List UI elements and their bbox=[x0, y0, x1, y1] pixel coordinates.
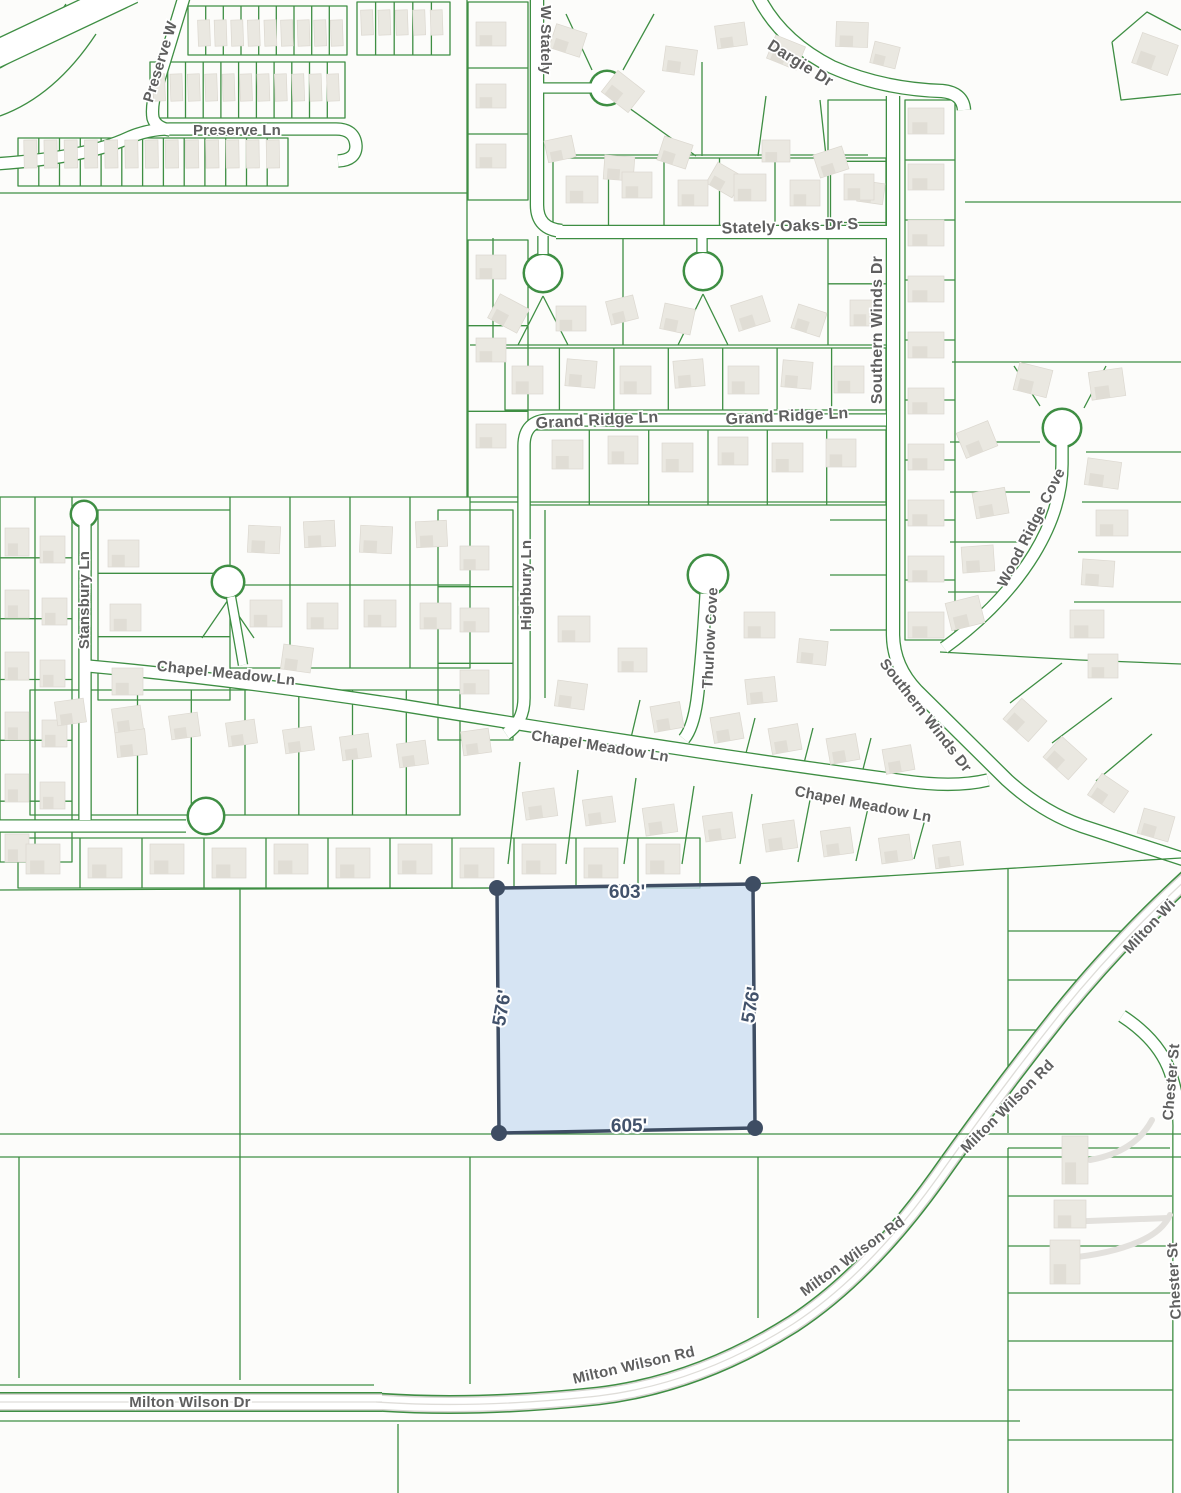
building bbox=[40, 782, 65, 809]
building bbox=[745, 677, 777, 705]
building bbox=[168, 712, 200, 740]
building bbox=[5, 774, 29, 802]
street-label-southern-winds-dr-1: Southern Winds Dr bbox=[869, 256, 886, 404]
street-label-highbury-ln: Highbury Ln bbox=[518, 540, 535, 631]
building bbox=[608, 436, 638, 464]
building bbox=[214, 20, 227, 46]
building bbox=[396, 740, 428, 768]
building bbox=[1084, 458, 1121, 489]
building bbox=[908, 500, 944, 526]
building bbox=[247, 525, 280, 554]
building bbox=[582, 796, 615, 826]
building bbox=[125, 140, 138, 168]
building bbox=[476, 144, 506, 168]
building bbox=[84, 140, 97, 168]
street-label-preserve-ln: Preserve Ln bbox=[193, 122, 281, 139]
building bbox=[566, 176, 598, 203]
building bbox=[266, 140, 279, 168]
building bbox=[870, 41, 901, 69]
building bbox=[660, 303, 696, 335]
building bbox=[1043, 736, 1087, 780]
building bbox=[826, 734, 860, 765]
building bbox=[813, 146, 849, 178]
building bbox=[565, 359, 597, 389]
building bbox=[961, 545, 995, 573]
building bbox=[488, 294, 530, 333]
building bbox=[522, 788, 558, 820]
building bbox=[206, 140, 219, 168]
building bbox=[5, 528, 29, 556]
building bbox=[42, 598, 67, 625]
building bbox=[314, 20, 327, 46]
building bbox=[231, 20, 244, 46]
building bbox=[40, 660, 65, 687]
building bbox=[361, 10, 374, 35]
building bbox=[1096, 510, 1128, 536]
building bbox=[112, 668, 143, 695]
building bbox=[430, 10, 443, 35]
building bbox=[415, 520, 447, 548]
building bbox=[554, 680, 587, 710]
building bbox=[1088, 654, 1118, 678]
map-canvas[interactable]: Preserve WPreserve LnW StatelyDargie DrS… bbox=[0, 0, 1181, 1493]
building bbox=[702, 812, 735, 842]
building bbox=[364, 600, 396, 627]
building bbox=[836, 21, 869, 47]
building bbox=[797, 639, 828, 666]
building bbox=[395, 10, 408, 35]
building bbox=[110, 604, 141, 631]
building bbox=[187, 74, 200, 101]
building bbox=[282, 726, 314, 754]
building bbox=[556, 306, 586, 331]
street-label-wood-ridge-cove: Wood Ridge Cove bbox=[994, 466, 1069, 590]
building bbox=[710, 713, 744, 744]
building bbox=[908, 164, 944, 190]
building bbox=[460, 848, 494, 878]
building bbox=[744, 612, 775, 638]
building bbox=[715, 22, 748, 49]
building bbox=[64, 140, 77, 168]
street-label-w-stately: W Stately bbox=[537, 5, 554, 75]
building bbox=[40, 536, 65, 563]
street-label-stansbury-ln: Stansbury Ln bbox=[76, 551, 93, 649]
building bbox=[460, 546, 489, 570]
building bbox=[620, 366, 651, 394]
building bbox=[476, 338, 506, 362]
building bbox=[44, 140, 57, 168]
building bbox=[222, 74, 235, 101]
building bbox=[1132, 32, 1179, 75]
building bbox=[292, 74, 305, 101]
building bbox=[762, 820, 798, 852]
building bbox=[731, 296, 771, 332]
building bbox=[5, 712, 29, 740]
building bbox=[5, 590, 29, 618]
building bbox=[105, 140, 118, 168]
building bbox=[1070, 610, 1104, 638]
building bbox=[205, 74, 218, 101]
building bbox=[413, 10, 426, 35]
building bbox=[150, 844, 184, 874]
selected-parcel[interactable] bbox=[497, 884, 755, 1133]
building bbox=[460, 608, 489, 632]
building bbox=[247, 20, 260, 46]
parcel-dimension-top: 603' bbox=[609, 882, 645, 903]
building bbox=[460, 670, 489, 694]
building bbox=[108, 540, 139, 567]
building bbox=[460, 728, 491, 756]
building bbox=[662, 443, 693, 472]
building bbox=[5, 652, 29, 680]
building bbox=[274, 844, 308, 874]
building bbox=[170, 74, 183, 101]
building bbox=[88, 848, 122, 878]
building bbox=[1003, 698, 1047, 742]
building bbox=[844, 174, 874, 200]
building bbox=[165, 140, 178, 168]
building bbox=[1054, 1200, 1086, 1228]
building bbox=[1088, 368, 1126, 400]
building bbox=[1087, 773, 1128, 812]
building bbox=[642, 804, 678, 836]
building bbox=[339, 733, 371, 761]
building bbox=[622, 172, 652, 198]
building bbox=[606, 295, 639, 325]
building bbox=[790, 180, 820, 206]
parcel-vertex[interactable] bbox=[745, 876, 761, 892]
building bbox=[240, 74, 253, 101]
building bbox=[359, 525, 392, 554]
parcel-vertex[interactable] bbox=[489, 880, 505, 896]
building bbox=[303, 520, 335, 548]
building bbox=[336, 848, 370, 878]
building bbox=[908, 444, 944, 470]
building bbox=[264, 20, 277, 46]
building bbox=[820, 827, 853, 857]
building bbox=[768, 724, 802, 755]
building bbox=[512, 366, 543, 394]
building bbox=[834, 366, 864, 393]
street-label-chester-st-2: Chester St bbox=[1164, 1242, 1181, 1320]
building bbox=[908, 612, 944, 638]
building bbox=[54, 698, 86, 726]
building bbox=[657, 136, 693, 169]
building bbox=[330, 20, 343, 46]
building bbox=[718, 437, 748, 465]
building bbox=[274, 74, 287, 101]
building bbox=[972, 487, 1009, 518]
building bbox=[111, 705, 143, 733]
parcel-dimension-bottom: 605' bbox=[611, 1116, 647, 1137]
building bbox=[5, 834, 29, 862]
building bbox=[650, 702, 684, 733]
building bbox=[246, 140, 259, 168]
building bbox=[932, 841, 963, 869]
building bbox=[678, 180, 708, 206]
building bbox=[378, 10, 391, 35]
building bbox=[225, 719, 257, 747]
building bbox=[309, 74, 322, 101]
building bbox=[226, 140, 239, 168]
building bbox=[908, 556, 944, 582]
building bbox=[618, 648, 647, 672]
building bbox=[297, 20, 310, 46]
building bbox=[772, 443, 803, 472]
building bbox=[878, 834, 912, 864]
building bbox=[1081, 559, 1115, 587]
building bbox=[1050, 1240, 1080, 1284]
building bbox=[281, 20, 294, 46]
building bbox=[762, 140, 790, 162]
building bbox=[24, 140, 37, 168]
building bbox=[476, 255, 506, 279]
building bbox=[476, 84, 506, 108]
street-label-chapel-meadow-ln-3: Chapel Meadow Ln bbox=[793, 783, 933, 826]
building bbox=[476, 424, 506, 448]
parcel-vertex[interactable] bbox=[491, 1125, 507, 1141]
building bbox=[420, 603, 451, 629]
building bbox=[826, 439, 856, 467]
building bbox=[280, 644, 313, 673]
building bbox=[956, 421, 998, 459]
building bbox=[398, 844, 432, 874]
building bbox=[250, 600, 282, 627]
building bbox=[646, 844, 680, 874]
building bbox=[1137, 808, 1175, 842]
building bbox=[307, 603, 338, 629]
building bbox=[908, 276, 944, 302]
building bbox=[558, 616, 590, 642]
building bbox=[522, 844, 556, 874]
street-label-milton-wilson-dr: Milton Wilson Dr bbox=[129, 1394, 250, 1411]
building bbox=[212, 848, 246, 878]
selected-parcel-layer: 603' 605' 576' 576' bbox=[489, 876, 765, 1141]
building bbox=[882, 745, 915, 775]
building bbox=[728, 366, 759, 394]
building bbox=[908, 332, 944, 358]
building bbox=[145, 140, 158, 168]
building bbox=[115, 729, 148, 758]
building bbox=[908, 108, 944, 134]
building bbox=[908, 388, 944, 414]
building bbox=[662, 46, 697, 75]
building bbox=[781, 360, 813, 390]
building bbox=[26, 844, 60, 874]
building bbox=[1013, 362, 1053, 397]
building bbox=[198, 20, 211, 46]
building bbox=[552, 440, 583, 469]
building bbox=[908, 220, 944, 246]
building bbox=[673, 359, 705, 389]
building bbox=[791, 304, 827, 337]
building bbox=[327, 74, 340, 101]
building bbox=[1062, 1136, 1088, 1184]
building bbox=[476, 22, 506, 46]
building bbox=[185, 140, 198, 168]
building bbox=[257, 74, 270, 101]
building bbox=[584, 848, 618, 878]
street-label-grand-ridge-ln-1: Grand Ridge Ln bbox=[535, 409, 659, 432]
parcel-vertex[interactable] bbox=[747, 1120, 763, 1136]
building bbox=[734, 174, 766, 201]
